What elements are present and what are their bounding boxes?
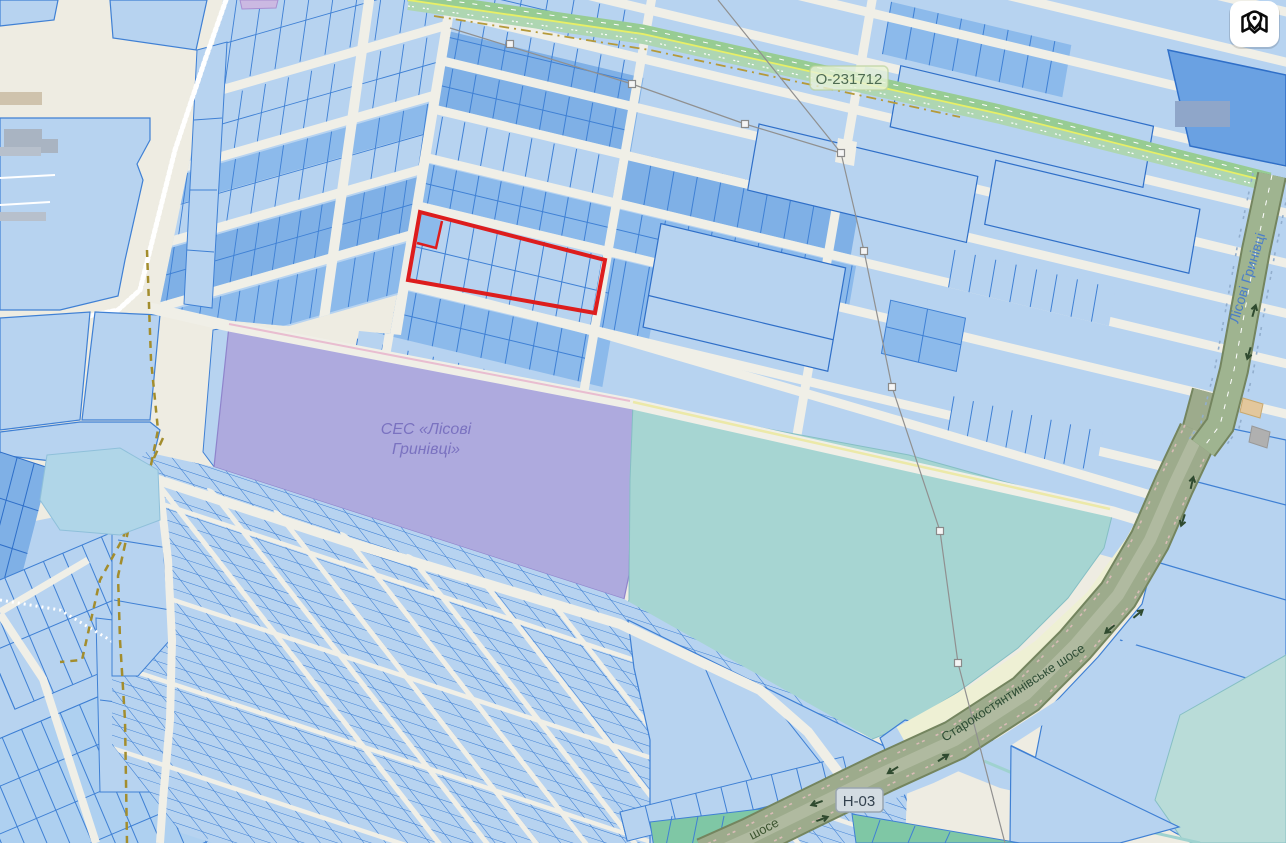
svg-text:СЕС «Лісові: СЕС «Лісові [381, 421, 472, 438]
svg-text:О-231712: О-231712 [816, 71, 883, 88]
svg-text:Гринівці»: Гринівці» [392, 441, 460, 458]
svg-text:Н-03: Н-03 [843, 793, 876, 810]
